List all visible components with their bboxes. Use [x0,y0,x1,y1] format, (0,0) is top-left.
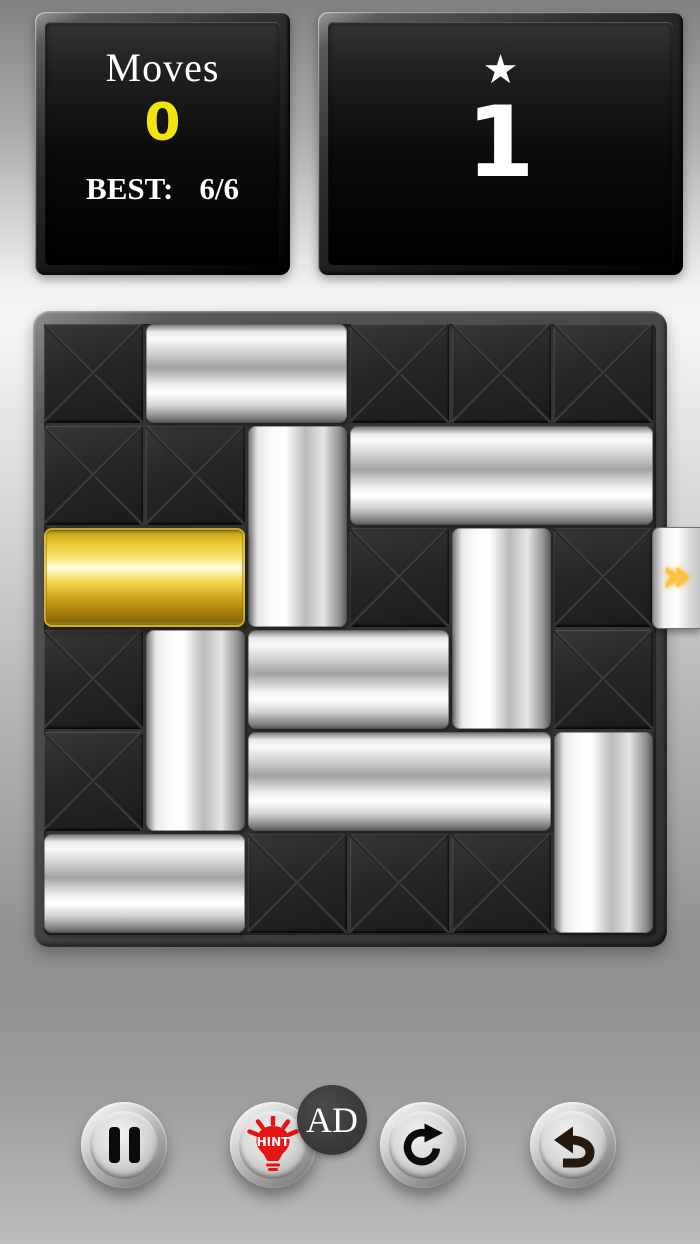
svg-text:HINT: HINT [257,1135,291,1149]
goal-block[interactable] [44,528,245,627]
hint-bulb-icon: HINT [246,1116,300,1174]
undo-icon [549,1121,597,1169]
empty-cell [248,834,347,933]
moves-label: Moves [106,44,220,91]
undo-button[interactable] [530,1102,616,1188]
empty-cell [350,528,449,627]
puzzle-board [33,311,667,947]
empty-cell [554,528,653,627]
empty-cell [44,630,143,729]
pause-button[interactable] [81,1102,167,1188]
empty-cell [452,324,551,423]
puzzle-block[interactable] [248,630,449,729]
moves-panel: Moves 0 BEST: 6/6 [35,12,290,275]
best-label: BEST: [86,171,173,207]
restart-button[interactable] [380,1102,466,1188]
empty-cell [554,324,653,423]
puzzle-block[interactable] [452,528,551,729]
level-number: 1 [466,92,534,195]
best-value: 6/6 [199,171,239,207]
best-score-row: BEST: 6/6 [86,171,239,207]
puzzle-block[interactable] [146,324,347,423]
puzzle-block[interactable] [554,732,653,933]
empty-cell [350,324,449,423]
empty-cell [146,426,245,525]
empty-cell [44,732,143,831]
level-panel-screen: ★ 1 [328,22,673,265]
puzzle-block[interactable] [248,732,551,831]
empty-cell [44,324,143,423]
moves-count: 0 [144,97,180,149]
puzzle-block[interactable] [44,834,245,933]
star-icon: ★ [483,50,519,90]
ad-badge[interactable]: AD [297,1085,367,1155]
level-panel: ★ 1 [318,12,683,275]
empty-cell [350,834,449,933]
board-grid [44,324,656,935]
exit-chevrons-icon: » [662,552,692,598]
moves-panel-screen: Moves 0 BEST: 6/6 [45,22,280,265]
puzzle-block[interactable] [146,630,245,831]
empty-cell [44,426,143,525]
puzzle-block[interactable] [248,426,347,627]
empty-cell [554,630,653,729]
exit-tab: » [652,527,700,629]
restart-icon [399,1121,447,1169]
pause-icon [109,1127,140,1163]
puzzle-block[interactable] [350,426,653,525]
empty-cell [452,834,551,933]
